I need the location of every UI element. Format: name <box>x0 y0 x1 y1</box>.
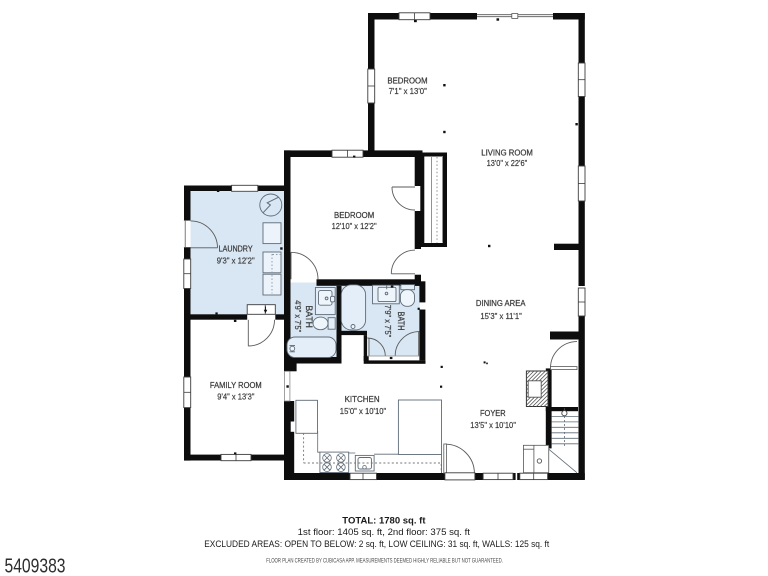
svg-text:TOTAL: 1780 sq. ft: TOTAL: 1780 sq. ft <box>342 515 426 526</box>
svg-text:LAUNDRY: LAUNDRY <box>219 243 253 253</box>
svg-text:FOYER: FOYER <box>480 408 506 418</box>
svg-text:LIVING ROOM: LIVING ROOM <box>481 147 533 157</box>
svg-text:FLOOR PLAN CREATED BY CUBICASA: FLOOR PLAN CREATED BY CUBICASA APP. MEAS… <box>266 558 503 564</box>
svg-text:9'3" x 12'2": 9'3" x 12'2" <box>217 257 255 266</box>
svg-text:1st floor: 1405 sq. ft, 2nd fl: 1st floor: 1405 sq. ft, 2nd floor: 375 s… <box>298 527 471 538</box>
svg-text:BATH: BATH <box>396 312 406 331</box>
svg-text:12'10" x 12'2": 12'10" x 12'2" <box>332 222 377 231</box>
svg-text:BATH: BATH <box>304 305 314 328</box>
svg-text:7'9" x 7'5": 7'9" x 7'5" <box>383 305 392 338</box>
svg-text:EXCLUDED AREAS: OPEN TO BELOW:: EXCLUDED AREAS: OPEN TO BELOW: 2 sq. ft,… <box>204 539 549 550</box>
svg-text:13'5" x 10'10": 13'5" x 10'10" <box>470 421 516 430</box>
svg-text:7'1" x 13'0": 7'1" x 13'0" <box>389 87 427 96</box>
svg-text:4'9" x 7'5": 4'9" x 7'5" <box>293 300 302 332</box>
svg-text:13'0" x 22'6": 13'0" x 22'6" <box>487 159 528 168</box>
svg-text:15'0" x 10'10": 15'0" x 10'10" <box>340 407 387 416</box>
svg-text:15'3" x 11'1": 15'3" x 11'1" <box>480 312 522 321</box>
svg-text:DINING AREA: DINING AREA <box>476 298 526 308</box>
svg-text:5409383: 5409383 <box>5 556 66 576</box>
svg-text:FAMILY ROOM: FAMILY ROOM <box>210 380 262 390</box>
svg-text:9'4" x 13'3": 9'4" x 13'3" <box>217 392 254 401</box>
svg-text:BEDROOM: BEDROOM <box>387 75 427 85</box>
svg-text:BEDROOM: BEDROOM <box>334 210 374 220</box>
svg-text:KITCHEN: KITCHEN <box>345 394 380 404</box>
